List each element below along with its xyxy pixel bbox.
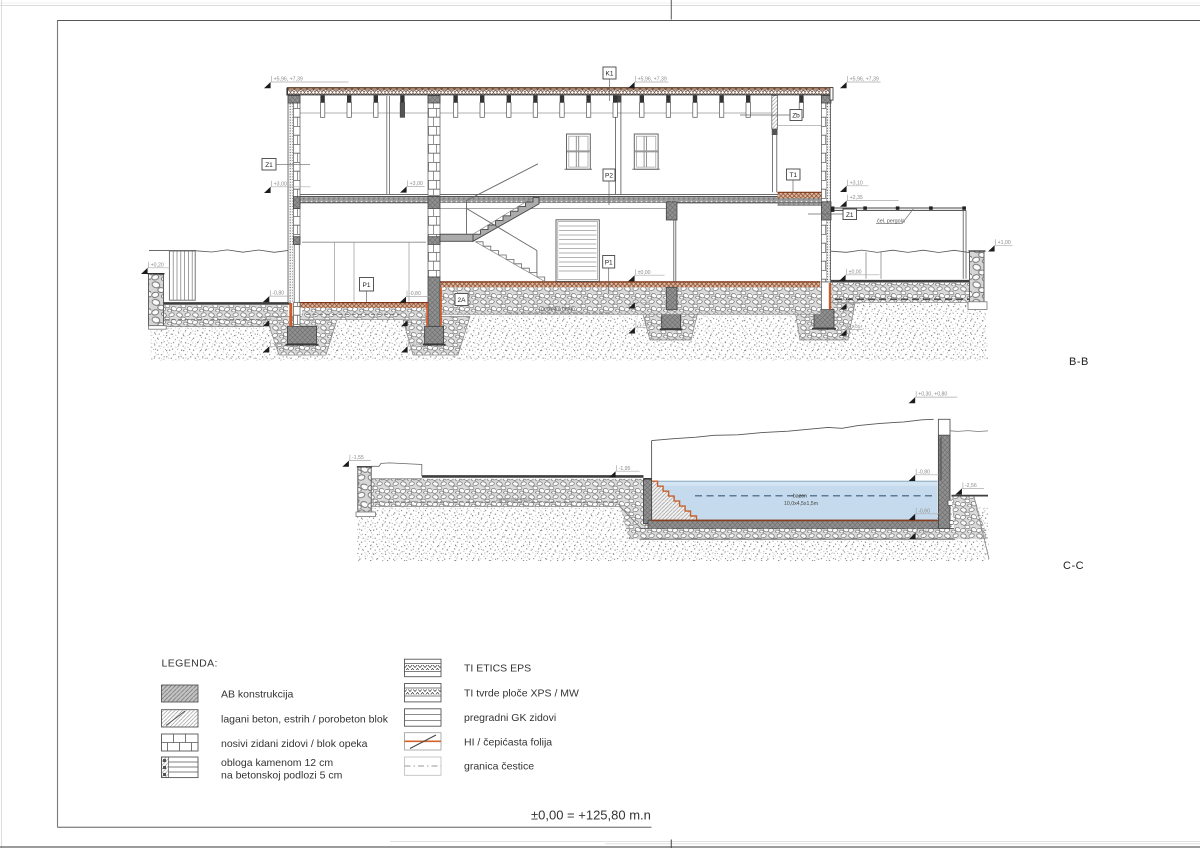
svg-text:nosivi zidani zidovi / blok op: nosivi zidani zidovi / blok opeka: [221, 738, 368, 750]
svg-text:+1,00: +1,00: [998, 240, 1011, 246]
svg-text:+0,30, +0,80: +0,30, +0,80: [918, 392, 947, 398]
svg-text:+0,20: +0,20: [151, 262, 164, 268]
svg-text:lagani beton, estrih / porobet: lagani beton, estrih / porobeton blok: [221, 714, 389, 726]
svg-text:-1,55: -1,55: [352, 455, 364, 461]
svg-text:P1: P1: [605, 259, 613, 266]
svg-text:bazen: bazen: [793, 493, 807, 499]
svg-text:na betonskoj podlozi 5 cm: na betonskoj podlozi 5 cm: [221, 770, 343, 782]
svg-text:LEGENDA:: LEGENDA:: [162, 658, 218, 670]
svg-text:AB konstrukcija: AB konstrukcija: [221, 689, 294, 701]
svg-text:obloga kamenom 12 cm: obloga kamenom 12 cm: [221, 757, 333, 769]
svg-text:-2,05: -2,05: [272, 341, 283, 346]
svg-text:C-C: C-C: [1063, 560, 1084, 572]
svg-text:P2: P2: [605, 173, 613, 180]
svg-text:K1: K1: [606, 71, 614, 78]
svg-text:-1,05: -1,05: [850, 324, 861, 329]
svg-text:+3,00: +3,00: [274, 181, 287, 187]
svg-text:TI tvrde ploče XPS / MW: TI tvrde ploče XPS / MW: [464, 688, 579, 700]
svg-text:HI / čepićasta folija: HI / čepićasta folija: [464, 737, 552, 749]
svg-text:podložni beton: podložni beton: [541, 307, 575, 313]
svg-text:TI ETICS EPS: TI ETICS EPS: [464, 663, 531, 675]
svg-text:+5,96, +7,39: +5,96, +7,39: [850, 77, 879, 83]
svg-text:+3,10: +3,10: [850, 180, 863, 186]
svg-text:-0,80: -0,80: [409, 291, 421, 297]
svg-text:±0,00: ±0,00: [849, 269, 862, 275]
svg-text:-0,80: -0,80: [918, 469, 930, 475]
svg-text:-1,05: -1,05: [638, 322, 649, 327]
svg-text:±0,00: ±0,00: [638, 270, 651, 276]
svg-text:-2,56: -2,56: [965, 483, 977, 489]
svg-text:-0,60: -0,60: [918, 508, 930, 514]
svg-text:Zb: Zb: [792, 113, 800, 120]
svg-text:Z1: Z1: [846, 212, 854, 219]
svg-text:granica čestice: granica čestice: [464, 761, 534, 773]
svg-text:+2,35: +2,35: [850, 195, 863, 201]
svg-text:+5,96, +7,39: +5,96, +7,39: [638, 77, 667, 83]
svg-text:P1: P1: [363, 282, 371, 289]
svg-text:T1: T1: [789, 172, 797, 179]
svg-text:10,0x4,5x1,5m: 10,0x4,5x1,5m: [784, 501, 818, 507]
svg-text:-0,80: -0,80: [272, 291, 284, 297]
svg-text:Z1: Z1: [265, 162, 273, 169]
svg-text:-3,10: -3,10: [919, 527, 930, 532]
svg-text:-1,95: -1,95: [619, 466, 631, 472]
svg-text:+3,00: +3,00: [410, 181, 423, 187]
svg-text:pregradni GK zidovi: pregradni GK zidovi: [464, 712, 556, 724]
svg-text:±0,00 = +125,80 m.n: ±0,00 = +125,80 m.n: [531, 808, 651, 823]
svg-text:-2,05: -2,05: [411, 341, 422, 346]
svg-text:+5,96, +7,39: +5,96, +7,39: [274, 77, 303, 83]
svg-text:B-B: B-B: [1069, 356, 1089, 368]
svg-text:zamjenski nasip: zamjenski nasip: [496, 497, 532, 503]
svg-text:2A: 2A: [458, 297, 467, 304]
